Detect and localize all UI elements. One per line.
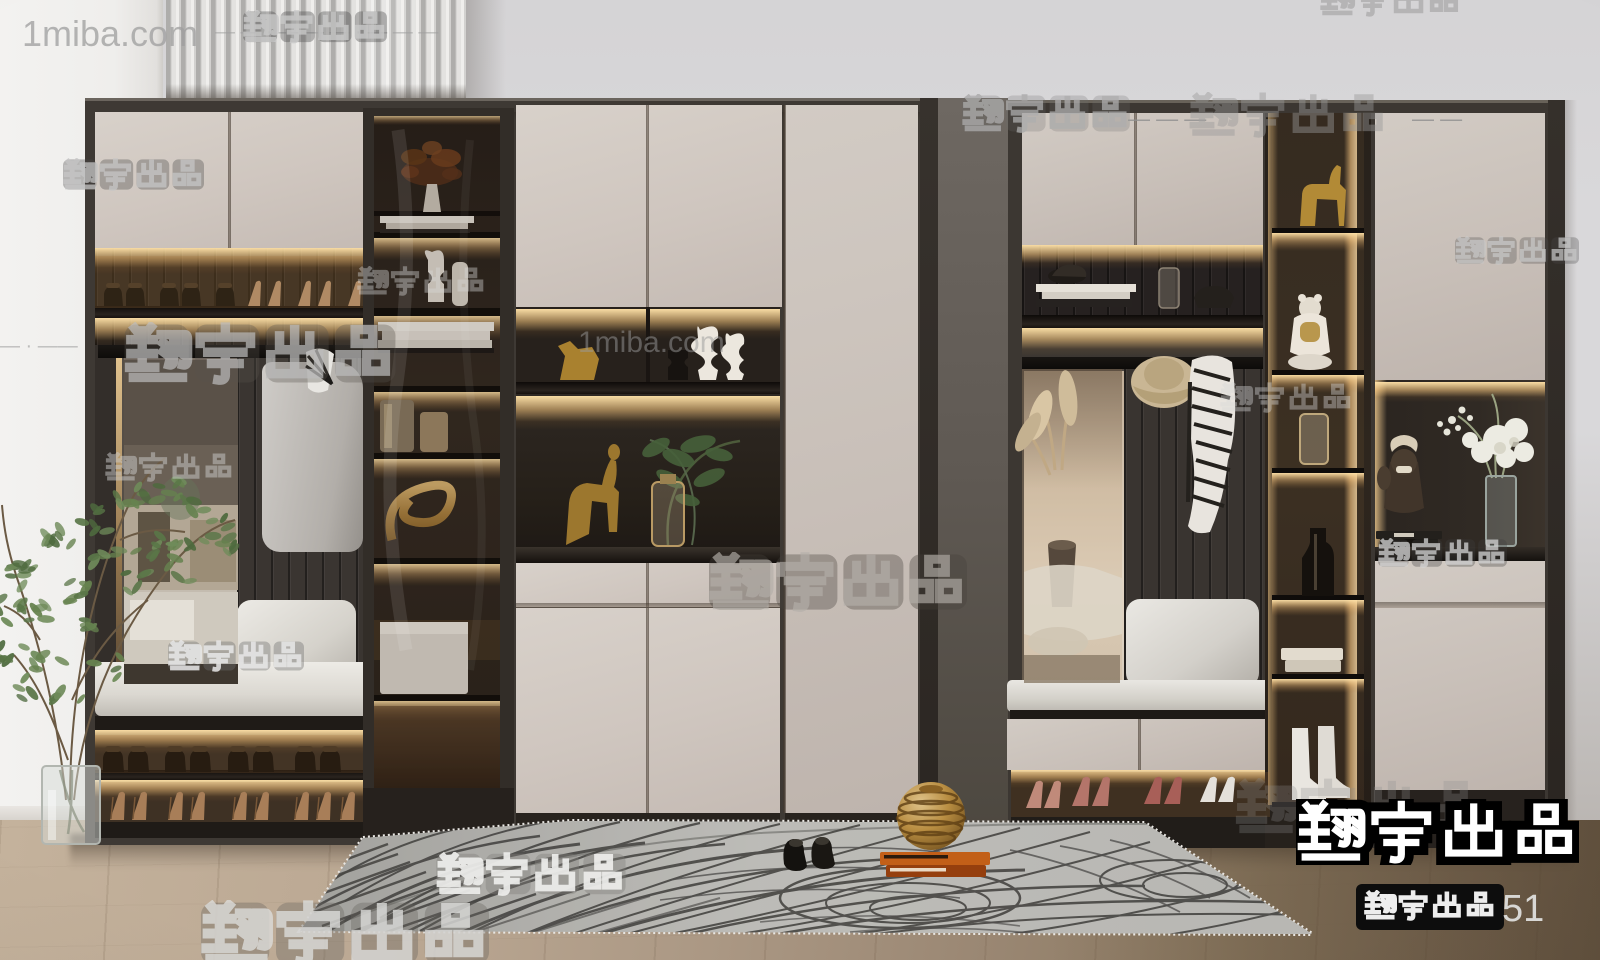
svg-text:51: 51 (1502, 888, 1544, 930)
svg-text:1miba.com: 1miba.com (578, 326, 725, 359)
svg-text:— —: — — (1412, 106, 1462, 131)
svg-text:1miba.com: 1miba.com (22, 13, 198, 54)
svg-text:— · ——: — · —— (0, 335, 78, 357)
